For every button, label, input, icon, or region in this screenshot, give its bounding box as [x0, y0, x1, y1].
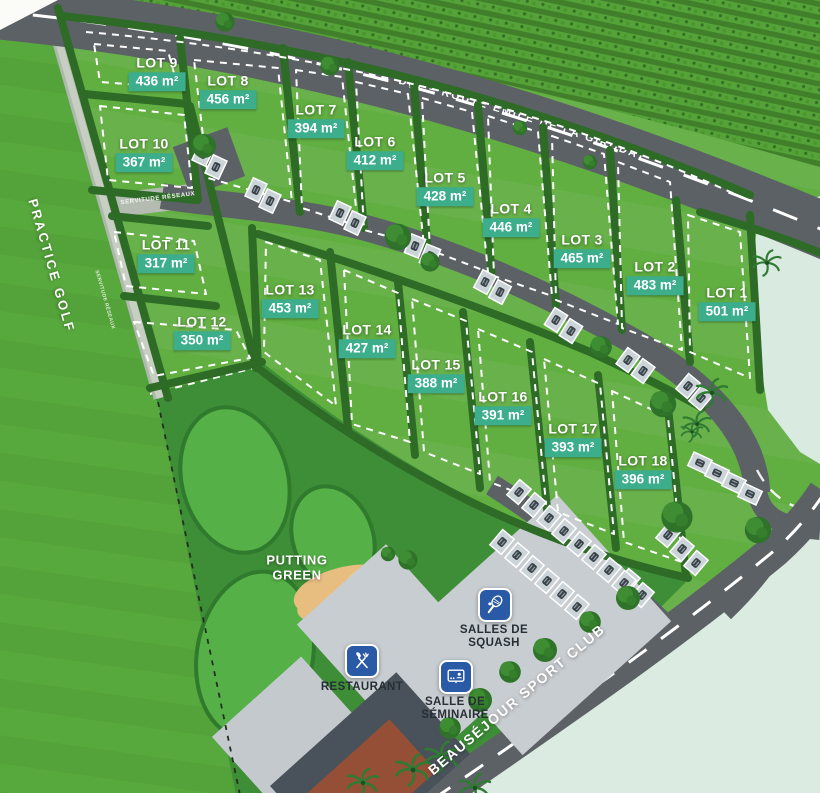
lot-area-badge: 436 m²	[129, 72, 186, 91]
lot-marker-16[interactable]: LOT 16 391 m²	[475, 389, 532, 425]
restaurant-label: RESTAURANT	[307, 681, 417, 694]
presentation-icon	[439, 660, 473, 694]
lot-area-badge: 427 m²	[339, 339, 396, 358]
squash-racket-icon	[478, 588, 512, 622]
lot-marker-3[interactable]: LOT 3 465 m²	[554, 232, 611, 268]
lot-area-badge: 456 m²	[200, 90, 257, 109]
lot-marker-7[interactable]: LOT 7 394 m²	[288, 102, 345, 138]
lot-area-badge: 350 m²	[174, 331, 231, 350]
lot-area-badge: 317 m²	[138, 254, 195, 273]
lot-area-badge: 453 m²	[262, 299, 319, 318]
lot-marker-11[interactable]: LOT 11 317 m²	[138, 237, 195, 273]
lot-marker-8[interactable]: LOT 8 456 m²	[200, 73, 257, 109]
restaurant-icon	[345, 644, 379, 678]
lot-marker-14[interactable]: LOT 14 427 m²	[339, 322, 396, 358]
lot-marker-2[interactable]: LOT 2 483 m²	[627, 259, 684, 295]
lot-area-badge: 501 m²	[699, 302, 756, 321]
lot-marker-1[interactable]: LOT 1 501 m²	[699, 285, 756, 321]
lot-marker-5[interactable]: LOT 5 428 m²	[417, 170, 474, 206]
lot-marker-4[interactable]: LOT 4 446 m²	[483, 201, 540, 237]
lot-area-badge: 388 m²	[408, 374, 465, 393]
seminar-label: SALLE DE SÉMINAIRE	[408, 696, 502, 722]
site-plan-illustration: D61 – ROUTE ÉMILE DE LA GIRODAY	[0, 0, 820, 793]
lot-area-badge: 428 m²	[417, 187, 474, 206]
lot-area-badge: 465 m²	[554, 249, 611, 268]
lot-marker-12[interactable]: LOT 12 350 m²	[174, 314, 231, 350]
lot-area-badge: 396 m²	[615, 470, 672, 489]
lot-area-badge: 393 m²	[545, 438, 602, 457]
lot-marker-9[interactable]: LOT 9 436 m²	[129, 55, 186, 91]
lot-area-badge: 394 m²	[288, 119, 345, 138]
lot-area-badge: 483 m²	[627, 276, 684, 295]
lot-marker-15[interactable]: LOT 15 388 m²	[408, 357, 465, 393]
site-plan: D61 – ROUTE ÉMILE DE LA GIRODAY	[0, 0, 820, 793]
lot-area-badge: 391 m²	[475, 406, 532, 425]
lot-marker-18[interactable]: LOT 18 396 m²	[615, 453, 672, 489]
lot-area-badge: 367 m²	[116, 153, 173, 172]
lot-marker-17[interactable]: LOT 17 393 m²	[545, 421, 602, 457]
lot-area-badge: 412 m²	[347, 151, 404, 170]
putting-green-label: PUTTING GREEN	[249, 553, 345, 582]
lot-area-badge: 446 m²	[483, 218, 540, 237]
squash-label: SALLES DE SQUASH	[450, 624, 538, 650]
lot-marker-10[interactable]: LOT 10 367 m²	[116, 136, 173, 172]
lot-marker-6[interactable]: LOT 6 412 m²	[347, 134, 404, 170]
lot-marker-13[interactable]: LOT 13 453 m²	[262, 282, 319, 318]
